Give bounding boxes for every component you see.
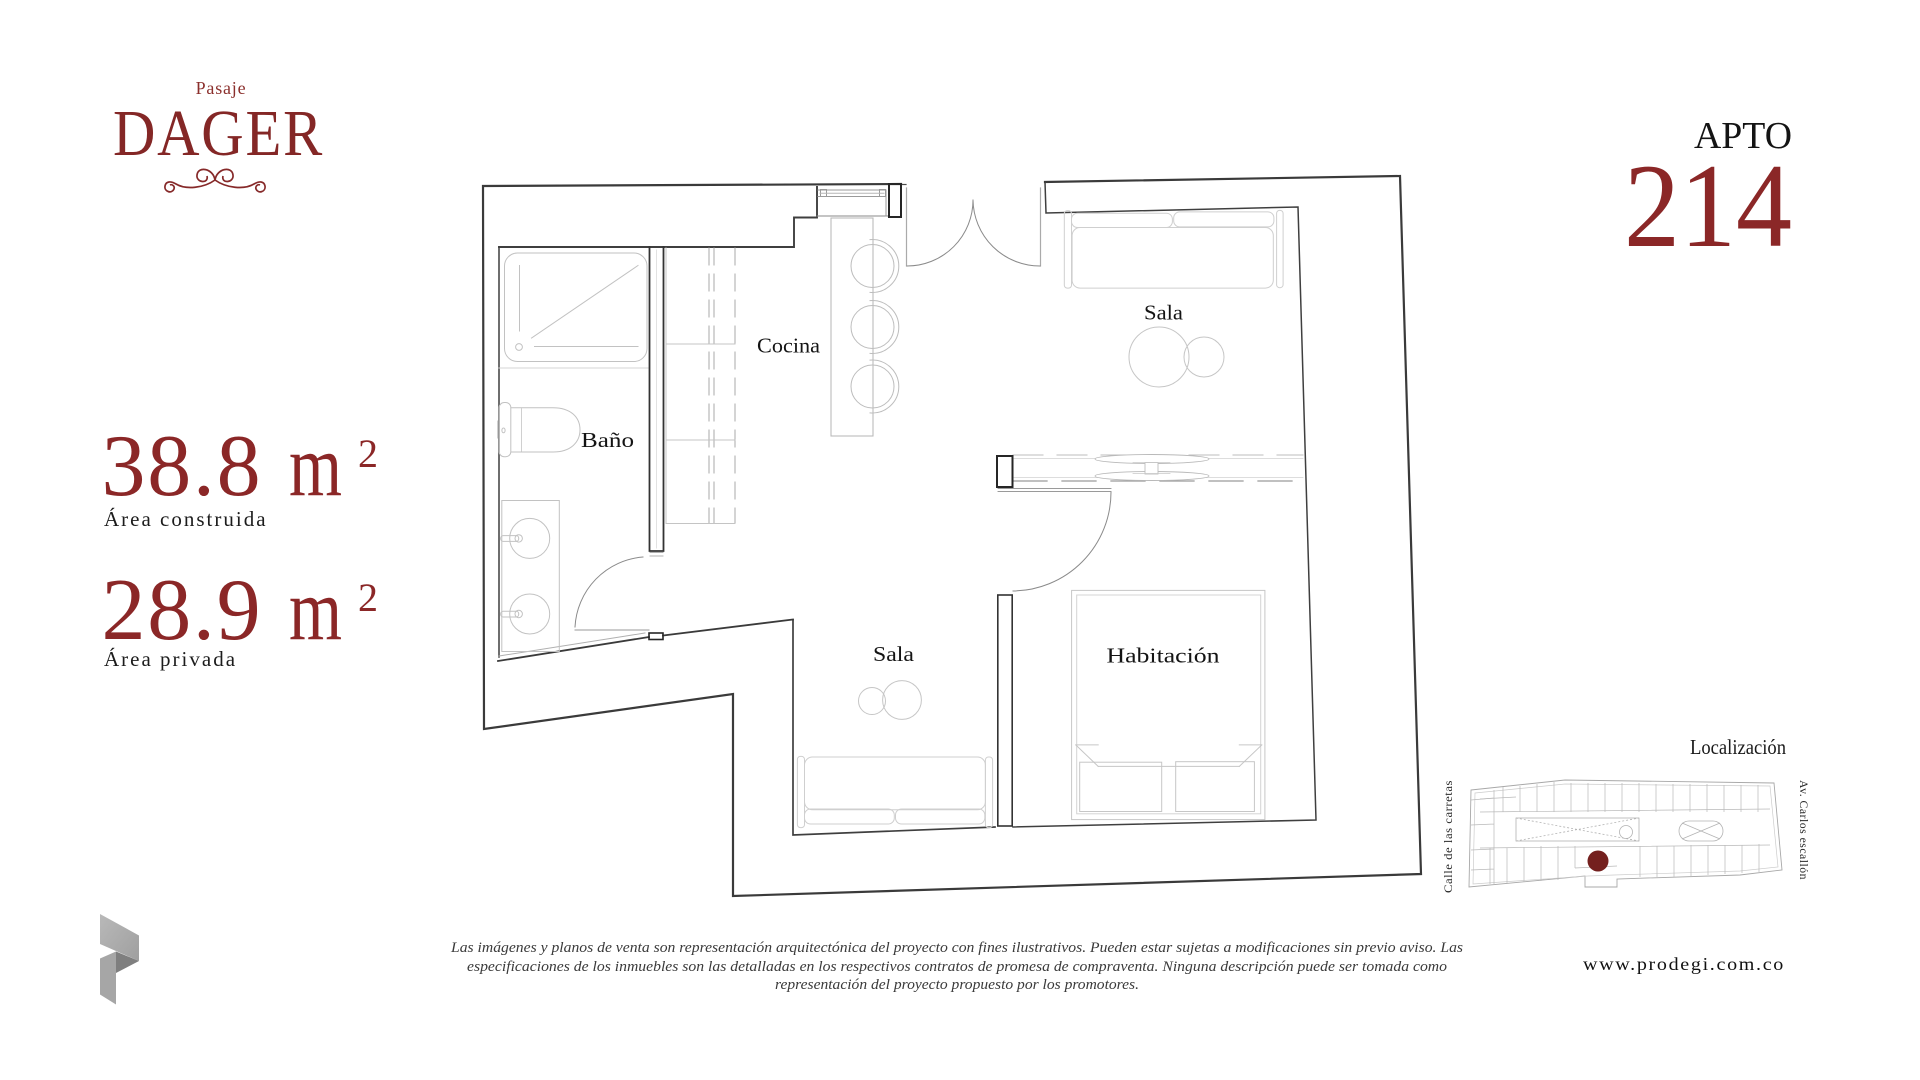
svg-text:2: 2 [358,575,378,620]
svg-text:38.8: 38.8 [102,418,263,515]
svg-text:Av. Carlos escallón: Av. Carlos escallón [1797,780,1811,880]
svg-text:214: 214 [1624,139,1792,272]
svg-text:m: m [289,562,342,659]
svg-text:Pasaje: Pasaje [196,78,247,98]
svg-text:especificaciones de los inmueb: especificaciones de los inmuebles son la… [467,959,1448,975]
svg-text:representación del proyecto pr: representación del proyecto propuesto po… [775,977,1139,993]
svg-text:Habitación: Habitación [1107,644,1220,668]
svg-text:Cocina: Cocina [757,333,820,357]
svg-text:www.prodegi.com.co: www.prodegi.com.co [1583,954,1785,974]
svg-text:Las imágenes y planos de venta: Las imágenes y planos de venta son repre… [450,940,1463,956]
svg-text:Sala: Sala [1144,301,1183,325]
svg-text:m: m [289,418,342,515]
svg-text:DAGER: DAGER [113,97,324,170]
svg-text:Baño: Baño [581,428,634,452]
svg-text:Área privada: Área privada [104,647,237,671]
svg-text:Sala: Sala [873,642,914,666]
svg-text:2: 2 [358,431,378,476]
svg-text:Área construida: Área construida [104,507,268,531]
svg-text:Calle de las carretas: Calle de las carretas [1441,780,1455,893]
svg-text:Localización: Localización [1690,735,1786,759]
svg-text:28.9: 28.9 [102,562,263,659]
